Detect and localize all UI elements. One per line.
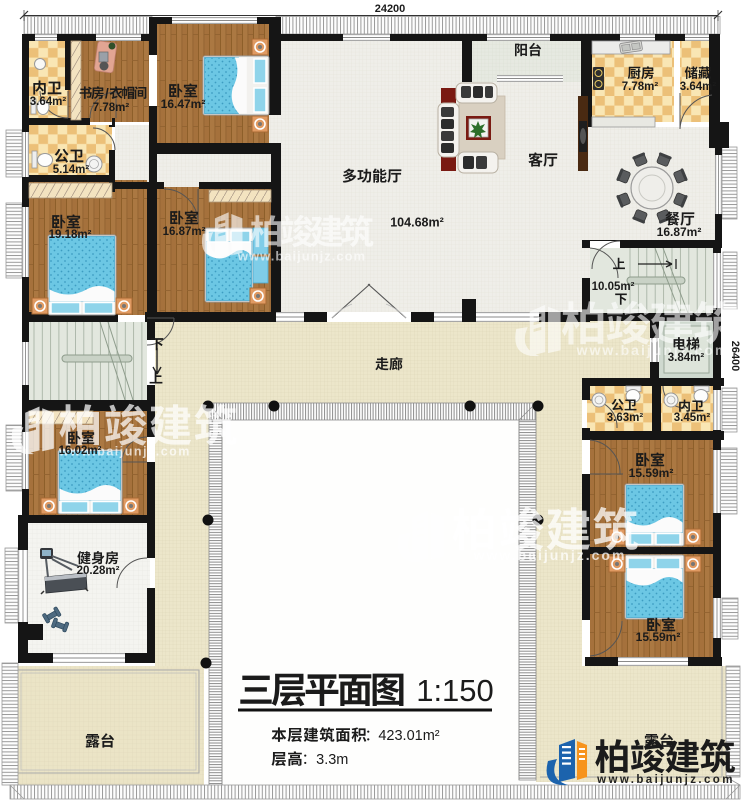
svg-text:7.78m²: 7.78m² bbox=[93, 102, 130, 114]
svg-text:1:150: 1:150 bbox=[416, 673, 494, 708]
svg-text:15.59m²: 15.59m² bbox=[636, 630, 681, 644]
svg-text:104.68m²: 104.68m² bbox=[390, 215, 444, 229]
svg-text:3.63m²: 3.63m² bbox=[607, 412, 644, 424]
svg-text:www.baijunjz.com: www.baijunjz.com bbox=[576, 342, 730, 358]
svg-text:5.14m²: 5.14m² bbox=[53, 164, 90, 176]
svg-text:www.baijunjz.com: www.baijunjz.com bbox=[596, 774, 735, 786]
svg-text:：: ： bbox=[364, 727, 379, 744]
svg-text:19.18m²: 19.18m² bbox=[49, 229, 92, 241]
svg-text:26400: 26400 bbox=[729, 341, 741, 372]
svg-text:16.87m²: 16.87m² bbox=[657, 225, 702, 239]
svg-text:3.64m²: 3.64m² bbox=[30, 96, 67, 108]
svg-text:：3.3m: ：3.3m bbox=[302, 752, 349, 768]
svg-text:7.78m²: 7.78m² bbox=[622, 81, 659, 93]
svg-text:www.baijunjz.com: www.baijunjz.com bbox=[237, 249, 366, 264]
svg-text:16.02m²: 16.02m² bbox=[59, 445, 102, 457]
svg-text:/: / bbox=[105, 86, 109, 101]
svg-text:20.28m²: 20.28m² bbox=[77, 565, 120, 577]
svg-text:16.87m²: 16.87m² bbox=[163, 226, 206, 238]
svg-text:3.64m²: 3.64m² bbox=[680, 81, 717, 93]
svg-text:423.01m²: 423.01m² bbox=[378, 728, 439, 744]
svg-text:10.05m²: 10.05m² bbox=[592, 281, 635, 293]
svg-text:3.84m²: 3.84m² bbox=[668, 352, 705, 364]
svg-text:16.47m²: 16.47m² bbox=[161, 97, 206, 111]
svg-text:15.59m²: 15.59m² bbox=[629, 466, 674, 480]
svg-text:www.baijunjz.com: www.baijunjz.com bbox=[473, 547, 627, 563]
svg-text:24200: 24200 bbox=[375, 3, 406, 15]
svg-text:3.45m²: 3.45m² bbox=[674, 412, 711, 424]
